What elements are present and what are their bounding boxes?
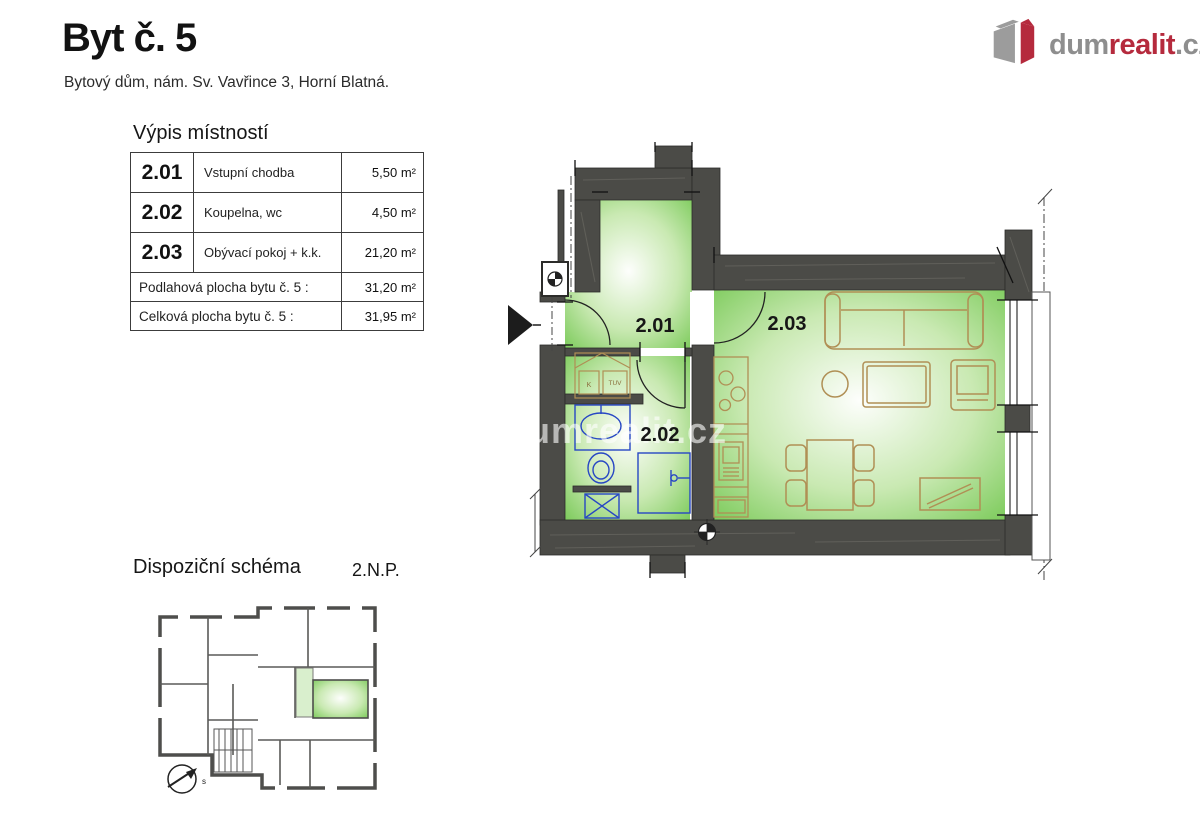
- room-area: 5,50 m²: [342, 153, 424, 193]
- floor-plan-sheet: Byt č. 5 Bytový dům, nám. Sv. Vavřince 3…: [0, 0, 1200, 833]
- room-number: 2.03: [131, 233, 194, 273]
- room-list-title: Výpis místností: [133, 122, 424, 145]
- summary-label: Podlahová plocha bytu č. 5 :: [131, 273, 342, 302]
- page-subtitle: Bytový dům, nám. Sv. Vavřince 3, Horní B…: [64, 74, 389, 92]
- closet-label-k: K: [587, 382, 592, 389]
- table-row: 2.02 Koupelna, wc 4,50 m²: [131, 193, 424, 233]
- table-summary-row: Celková plocha bytu č. 5 : 31,95 m²: [131, 302, 424, 331]
- table-row: 2.01 Vstupní chodba 5,50 m²: [131, 153, 424, 193]
- schematic-entry-highlight: [296, 668, 313, 717]
- watermark: dumrealit.cz: [505, 410, 727, 451]
- summary-label: Celková plocha bytu č. 5 :: [131, 302, 342, 331]
- window-right-top: [1005, 300, 1032, 405]
- room-name: Obývací pokoj + k.k.: [194, 233, 342, 273]
- window-right-bottom: [1005, 432, 1032, 515]
- brand-logo: dumrealit.cz: [986, 13, 1200, 69]
- room-list: Výpis místností 2.01 Vstupní chodba 5,50…: [130, 122, 424, 331]
- summary-area: 31,95 m²: [342, 302, 424, 331]
- logo-text-cz: .cz: [1175, 29, 1200, 61]
- logo-text-realit: realit: [1109, 29, 1175, 61]
- logo-box-icon: [986, 13, 1040, 69]
- plan-label-2-02: 2.02: [641, 424, 680, 446]
- table-row: 2.03 Obývací pokoj + k.k. 21,20 m²: [131, 233, 424, 273]
- main-floor-plan: K TUV: [495, 142, 1070, 582]
- layout-schematic: s: [150, 592, 420, 817]
- summary-area: 31,20 m²: [342, 273, 424, 302]
- schematic-unit-highlight: [313, 680, 368, 718]
- room-areas: [565, 200, 1005, 520]
- room-name: Vstupní chodba: [194, 153, 342, 193]
- room-area: 21,20 m²: [342, 233, 424, 273]
- closet-label-tuv: TUV: [609, 380, 623, 387]
- logo-text-dum: dum: [1049, 29, 1109, 61]
- room-number: 2.02: [131, 193, 194, 233]
- compass-south-label: s: [202, 777, 206, 786]
- page-title: Byt č. 5: [62, 16, 196, 61]
- room-name: Koupelna, wc: [194, 193, 342, 233]
- meter-box: [542, 262, 568, 296]
- schematic-title: Dispoziční schéma: [133, 556, 301, 579]
- window-sill: [1032, 292, 1050, 560]
- entrance-arrow-icon: [508, 305, 541, 345]
- plan-label-2-01: 2.01: [636, 315, 675, 337]
- table-summary-row: Podlahová plocha bytu č. 5 : 31,20 m²: [131, 273, 424, 302]
- plan-label-2-03: 2.03: [768, 313, 807, 335]
- brand-wordmark: dumrealit.cz: [1049, 29, 1200, 62]
- schematic-floor-label: 2.N.P.: [352, 560, 400, 581]
- room-number: 2.01: [131, 153, 194, 193]
- room-2-03-area: [714, 290, 1005, 520]
- room-table: 2.01 Vstupní chodba 5,50 m² 2.02 Koupeln…: [130, 152, 424, 331]
- compass-icon: s: [168, 765, 206, 793]
- room-area: 4,50 m²: [342, 193, 424, 233]
